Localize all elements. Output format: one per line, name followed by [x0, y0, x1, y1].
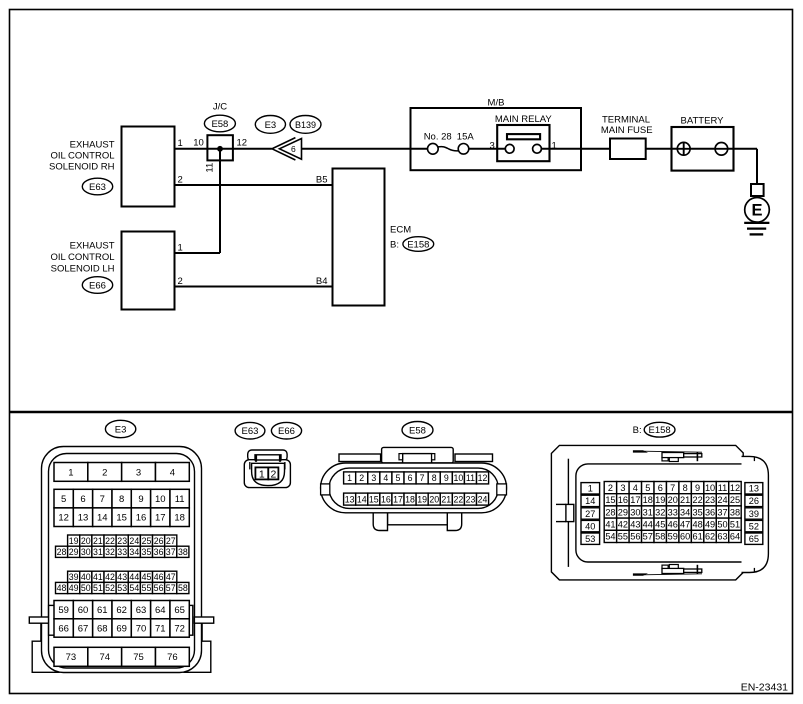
svg-text:23: 23 — [117, 536, 127, 546]
svg-text:13: 13 — [749, 484, 759, 494]
svg-text:43: 43 — [630, 520, 640, 530]
svg-text:3: 3 — [371, 473, 376, 483]
svg-text:33: 33 — [117, 547, 127, 557]
svg-text:17: 17 — [155, 513, 166, 524]
svg-text:15: 15 — [116, 513, 127, 524]
svg-text:1: 1 — [178, 243, 183, 254]
svg-text:27: 27 — [585, 509, 595, 519]
svg-text:5: 5 — [645, 483, 650, 493]
svg-text:TERMINAL: TERMINAL — [602, 115, 650, 126]
svg-text:M/B: M/B — [488, 97, 505, 108]
svg-text:19: 19 — [655, 495, 665, 505]
svg-text:2: 2 — [178, 175, 183, 186]
svg-text:52: 52 — [749, 521, 759, 531]
svg-text:14: 14 — [97, 513, 108, 524]
svg-text:39: 39 — [69, 572, 79, 582]
svg-text:E158: E158 — [407, 239, 429, 250]
svg-text:1: 1 — [552, 140, 557, 151]
svg-text:11: 11 — [718, 483, 728, 493]
svg-text:47: 47 — [680, 520, 690, 530]
svg-text:30: 30 — [630, 507, 640, 517]
svg-text:15: 15 — [369, 494, 379, 504]
svg-text:2: 2 — [270, 469, 276, 481]
svg-text:46: 46 — [154, 572, 164, 582]
svg-text:E58: E58 — [211, 119, 228, 130]
svg-text:18: 18 — [405, 494, 415, 504]
svg-text:20: 20 — [668, 495, 678, 505]
svg-text:10: 10 — [193, 138, 204, 149]
svg-text:8: 8 — [432, 473, 437, 483]
svg-text:18: 18 — [174, 513, 185, 524]
svg-text:No. 28: No. 28 — [424, 132, 452, 143]
svg-text:76: 76 — [167, 652, 178, 663]
svg-text:34: 34 — [129, 547, 139, 557]
svg-text:16: 16 — [381, 494, 391, 504]
svg-text:B5: B5 — [316, 175, 328, 186]
svg-text:8: 8 — [683, 483, 688, 493]
svg-text:35: 35 — [692, 507, 702, 517]
svg-text:22: 22 — [692, 495, 702, 505]
svg-text:12: 12 — [58, 513, 69, 524]
svg-text:8: 8 — [119, 494, 124, 505]
svg-text:31: 31 — [93, 547, 103, 557]
svg-text:18: 18 — [643, 495, 653, 505]
svg-text:E63: E63 — [89, 182, 106, 193]
svg-text:50: 50 — [717, 520, 727, 530]
svg-text:E66: E66 — [89, 280, 106, 291]
svg-text:OIL CONTROL: OIL CONTROL — [50, 151, 114, 162]
svg-text:38: 38 — [730, 507, 740, 517]
svg-text:41: 41 — [93, 572, 103, 582]
svg-text:40: 40 — [585, 521, 595, 531]
svg-text:53: 53 — [117, 583, 127, 593]
svg-text:64: 64 — [730, 532, 740, 542]
svg-text:E66: E66 — [278, 426, 295, 437]
svg-text:16: 16 — [136, 513, 147, 524]
svg-text:1: 1 — [259, 469, 265, 481]
svg-text:65: 65 — [174, 605, 185, 616]
svg-text:22: 22 — [105, 536, 115, 546]
svg-text:E3: E3 — [265, 120, 277, 131]
svg-text:42: 42 — [105, 572, 115, 582]
svg-text:59: 59 — [668, 532, 678, 542]
svg-text:6: 6 — [408, 473, 413, 483]
svg-text:50: 50 — [81, 583, 91, 593]
svg-text:24: 24 — [717, 495, 727, 505]
svg-text:12: 12 — [237, 138, 248, 149]
svg-text:60: 60 — [680, 532, 690, 542]
svg-text:47: 47 — [166, 572, 176, 582]
svg-text:61: 61 — [692, 532, 702, 542]
svg-text:4: 4 — [170, 467, 175, 478]
svg-text:58: 58 — [178, 583, 188, 593]
svg-text:24: 24 — [129, 536, 139, 546]
svg-text:63: 63 — [717, 532, 727, 542]
svg-text:44: 44 — [129, 572, 139, 582]
svg-text:11: 11 — [466, 473, 475, 483]
svg-text:5: 5 — [396, 473, 401, 483]
svg-text:33: 33 — [668, 507, 678, 517]
svg-text:21: 21 — [441, 494, 451, 504]
svg-text:EN-23431: EN-23431 — [741, 682, 788, 694]
svg-text:67: 67 — [78, 623, 89, 634]
svg-text:46: 46 — [668, 520, 678, 530]
svg-text:11: 11 — [204, 163, 215, 173]
svg-text:54: 54 — [605, 532, 615, 542]
svg-text:32: 32 — [655, 507, 665, 517]
svg-text:2: 2 — [359, 473, 364, 483]
svg-text:E158: E158 — [649, 425, 671, 436]
svg-text:E: E — [751, 202, 762, 220]
svg-text:OIL CONTROL: OIL CONTROL — [50, 252, 114, 263]
svg-text:45: 45 — [142, 572, 152, 582]
svg-text:22: 22 — [453, 494, 463, 504]
svg-text:7: 7 — [420, 473, 425, 483]
svg-text:B4: B4 — [316, 276, 328, 287]
svg-text:1: 1 — [178, 138, 183, 149]
svg-text:E3: E3 — [115, 424, 127, 435]
svg-text:23: 23 — [466, 494, 476, 504]
svg-text:55: 55 — [618, 532, 628, 542]
svg-text:34: 34 — [680, 507, 690, 517]
svg-text:EXHAUST: EXHAUST — [70, 140, 115, 151]
svg-text:48: 48 — [692, 520, 702, 530]
svg-text:J/C: J/C — [213, 102, 227, 113]
svg-text:EXHAUST: EXHAUST — [70, 240, 115, 251]
svg-text:16: 16 — [618, 495, 628, 505]
svg-text:21: 21 — [680, 495, 690, 505]
svg-text:49: 49 — [705, 520, 715, 530]
svg-text:26: 26 — [749, 496, 759, 506]
svg-text:9: 9 — [444, 473, 449, 483]
svg-text:44: 44 — [643, 520, 653, 530]
svg-text:10: 10 — [705, 483, 715, 493]
svg-text:37: 37 — [717, 507, 727, 517]
svg-text:SOLENOID LH: SOLENOID LH — [51, 263, 115, 274]
svg-text:73: 73 — [66, 652, 77, 663]
svg-text:49: 49 — [69, 583, 79, 593]
svg-text:28: 28 — [605, 507, 615, 517]
svg-text:58: 58 — [655, 532, 665, 542]
svg-text:65: 65 — [749, 534, 759, 544]
svg-text:36: 36 — [154, 547, 164, 557]
svg-text:40: 40 — [81, 572, 91, 582]
svg-text:1: 1 — [588, 484, 593, 494]
svg-text:59: 59 — [58, 605, 69, 616]
svg-text:48: 48 — [57, 583, 67, 593]
svg-text:B:: B: — [633, 425, 642, 436]
svg-text:51: 51 — [93, 583, 103, 593]
svg-text:56: 56 — [154, 583, 164, 593]
svg-text:19: 19 — [417, 494, 427, 504]
svg-text:64: 64 — [155, 605, 166, 616]
svg-text:36: 36 — [705, 507, 715, 517]
svg-text:45: 45 — [655, 520, 665, 530]
svg-text:10: 10 — [155, 494, 166, 505]
svg-text:5: 5 — [61, 494, 66, 505]
svg-text:61: 61 — [97, 605, 108, 616]
svg-text:29: 29 — [618, 507, 628, 517]
svg-text:51: 51 — [730, 520, 740, 530]
svg-text:2: 2 — [178, 276, 183, 287]
svg-text:MAIN RELAY: MAIN RELAY — [495, 114, 553, 125]
svg-text:29: 29 — [69, 547, 79, 557]
svg-text:62: 62 — [705, 532, 715, 542]
svg-text:41: 41 — [605, 520, 615, 530]
svg-text:26: 26 — [154, 536, 164, 546]
svg-text:3: 3 — [490, 140, 495, 151]
svg-text:42: 42 — [618, 520, 628, 530]
svg-text:13: 13 — [78, 513, 89, 524]
svg-text:57: 57 — [643, 532, 653, 542]
svg-text:6: 6 — [80, 494, 85, 505]
svg-text:39: 39 — [749, 509, 759, 519]
svg-text:38: 38 — [178, 547, 188, 557]
svg-text:6: 6 — [658, 483, 663, 493]
svg-text:3: 3 — [620, 483, 625, 493]
svg-text:52: 52 — [105, 583, 115, 593]
svg-text:2: 2 — [102, 467, 107, 478]
svg-text:23: 23 — [705, 495, 715, 505]
svg-text:20: 20 — [429, 494, 439, 504]
svg-text:72: 72 — [174, 623, 185, 634]
svg-text:13: 13 — [345, 494, 355, 504]
svg-text:53: 53 — [585, 534, 595, 544]
svg-text:14: 14 — [357, 494, 367, 504]
svg-text:MAIN FUSE: MAIN FUSE — [601, 125, 653, 136]
svg-text:75: 75 — [133, 652, 144, 663]
svg-text:57: 57 — [166, 583, 176, 593]
svg-text:66: 66 — [58, 623, 69, 634]
svg-text:31: 31 — [643, 507, 653, 517]
svg-text:BATTERY: BATTERY — [681, 115, 725, 126]
svg-text:6: 6 — [291, 144, 296, 154]
svg-text:2: 2 — [608, 483, 613, 493]
svg-text:70: 70 — [136, 623, 147, 634]
svg-text:4: 4 — [383, 473, 388, 483]
svg-text:1: 1 — [68, 467, 73, 478]
svg-text:24: 24 — [478, 494, 488, 504]
svg-text:12: 12 — [478, 473, 488, 483]
svg-text:15A: 15A — [457, 132, 475, 143]
svg-text:69: 69 — [116, 623, 127, 634]
svg-text:SOLENOID RH: SOLENOID RH — [49, 162, 115, 173]
svg-text:12: 12 — [730, 483, 740, 493]
svg-text:19: 19 — [69, 536, 79, 546]
svg-text:10: 10 — [453, 473, 463, 483]
svg-text:3: 3 — [136, 467, 141, 478]
svg-text:15: 15 — [605, 495, 615, 505]
svg-text:7: 7 — [100, 494, 105, 505]
svg-text:ECM: ECM — [390, 225, 411, 236]
svg-text:11: 11 — [175, 494, 185, 505]
svg-text:14: 14 — [585, 496, 595, 506]
svg-text:37: 37 — [166, 547, 176, 557]
svg-text:E58: E58 — [409, 425, 426, 436]
svg-text:9: 9 — [695, 483, 700, 493]
svg-text:56: 56 — [630, 532, 640, 542]
svg-text:63: 63 — [136, 605, 147, 616]
svg-text:17: 17 — [393, 494, 403, 504]
svg-text:35: 35 — [142, 547, 152, 557]
svg-text:E63: E63 — [242, 426, 259, 437]
svg-text:B139: B139 — [295, 120, 316, 130]
svg-text:68: 68 — [97, 623, 108, 634]
svg-text:1: 1 — [347, 473, 352, 483]
svg-text:28: 28 — [57, 547, 67, 557]
svg-text:17: 17 — [630, 495, 640, 505]
svg-text:9: 9 — [138, 494, 143, 505]
svg-text:30: 30 — [81, 547, 91, 557]
svg-text:4: 4 — [633, 483, 638, 493]
svg-text:60: 60 — [78, 605, 89, 616]
svg-text:25: 25 — [142, 536, 152, 546]
svg-text:25: 25 — [730, 495, 740, 505]
svg-text:20: 20 — [81, 536, 91, 546]
svg-text:B:: B: — [390, 239, 399, 250]
svg-text:62: 62 — [116, 605, 127, 616]
svg-text:43: 43 — [117, 572, 127, 582]
svg-text:32: 32 — [105, 547, 115, 557]
svg-text:74: 74 — [99, 652, 110, 663]
svg-text:55: 55 — [142, 583, 152, 593]
svg-text:71: 71 — [155, 623, 166, 634]
svg-text:27: 27 — [166, 536, 176, 546]
svg-text:21: 21 — [93, 536, 103, 546]
svg-text:54: 54 — [129, 583, 139, 593]
svg-text:7: 7 — [670, 483, 675, 493]
